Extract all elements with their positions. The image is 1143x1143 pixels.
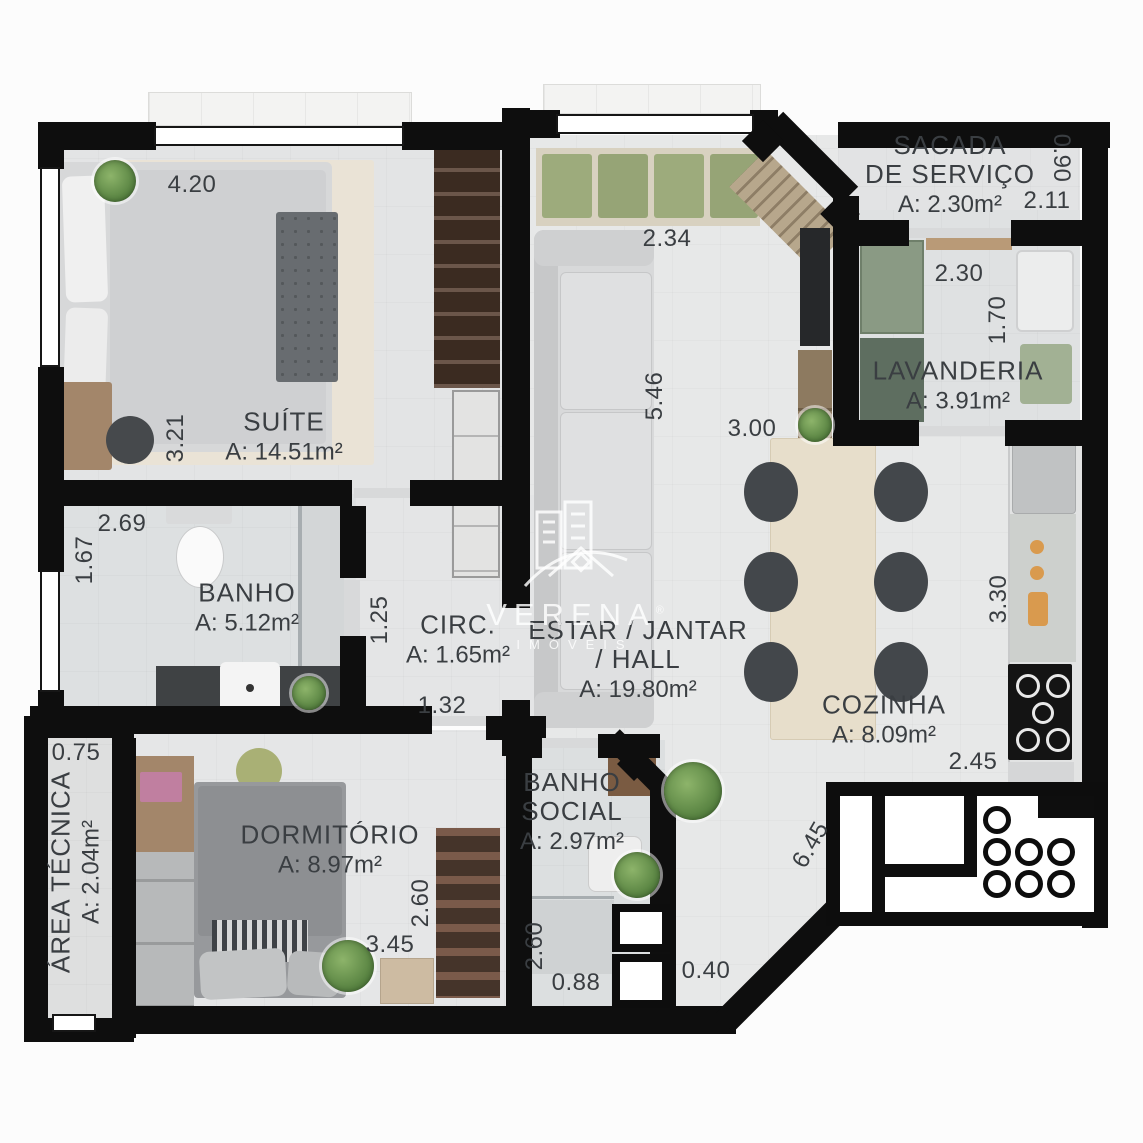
room-name: COZINHA bbox=[822, 691, 946, 720]
kitchen-item bbox=[1030, 540, 1044, 554]
room-name: SACADA bbox=[865, 131, 1035, 160]
dim-suite-width: 4.20 bbox=[168, 171, 217, 199]
dim-banho-social-width: 0.88 bbox=[552, 969, 601, 997]
schem-wall bbox=[872, 796, 885, 912]
room-area: A: 2.30m² bbox=[865, 192, 1035, 219]
room-area: A: 14.51m² bbox=[225, 440, 342, 467]
kitchen-item bbox=[1030, 566, 1044, 580]
dim-shaft-width: 0.40 bbox=[682, 957, 731, 985]
wall-segment bbox=[38, 122, 64, 169]
suite-stool bbox=[106, 416, 154, 464]
wall-segment bbox=[38, 480, 352, 506]
room-label-banho: BANHO A: 5.12m² bbox=[195, 579, 299, 638]
door-threshold bbox=[344, 580, 360, 636]
plant-icon bbox=[94, 160, 136, 202]
window bbox=[556, 114, 754, 134]
burner-icon bbox=[1046, 728, 1070, 752]
wall-segment bbox=[112, 738, 136, 1038]
schem-wall bbox=[964, 796, 977, 876]
brand-logo-icon bbox=[515, 498, 635, 590]
dim-cozinha-depth: 3.30 bbox=[985, 575, 1013, 624]
room-name: ÁREA TÉCNICA bbox=[47, 771, 76, 973]
shaft bbox=[612, 954, 670, 1008]
tv-panel bbox=[800, 228, 830, 346]
washer bbox=[860, 240, 924, 334]
room-area: A: 2.04m² bbox=[79, 771, 106, 973]
wall-segment bbox=[1005, 420, 1084, 446]
plant-icon bbox=[664, 762, 722, 820]
room-area: A: 19.80m² bbox=[528, 677, 748, 704]
wall-bottom-outer bbox=[118, 1006, 736, 1034]
plant-icon bbox=[614, 852, 660, 898]
building-core-schematic bbox=[826, 782, 1108, 926]
fridge bbox=[1012, 436, 1076, 514]
dim-dorm-width: 3.45 bbox=[366, 931, 415, 959]
dorm-wardrobe-right bbox=[436, 828, 500, 998]
room-label-area-tecnica: ÁREA TÉCNICA A: 2.04m² bbox=[47, 771, 106, 973]
kitchen-item bbox=[1028, 592, 1048, 626]
suite-desk bbox=[58, 382, 112, 470]
room-label-lavanderia: LAVANDERIA A: 3.91m² bbox=[873, 357, 1044, 416]
bench-cushion bbox=[654, 154, 704, 218]
exterior-sill-suite bbox=[148, 92, 412, 126]
window bbox=[154, 126, 404, 146]
schem-circle bbox=[983, 838, 1011, 866]
window bbox=[40, 570, 60, 692]
schem-circle bbox=[1047, 870, 1075, 898]
wall-segment bbox=[340, 506, 366, 578]
dim-circ-width: 1.32 bbox=[418, 692, 467, 720]
laundry-sink bbox=[1016, 250, 1074, 332]
room-label-cozinha: COZINHA A: 8.09m² bbox=[822, 691, 946, 750]
dim-area-tecnica-width: 0.75 bbox=[52, 739, 101, 767]
dim-living-width: 3.00 bbox=[728, 415, 777, 443]
door-threshold bbox=[919, 426, 1005, 436]
schem-circle bbox=[1047, 838, 1075, 866]
room-label-dormitorio: DORMITÓRIO A: 8.97m² bbox=[241, 821, 420, 880]
dim-lavanderia-depth: 1.70 bbox=[984, 296, 1012, 345]
dorm-desk-item bbox=[140, 772, 182, 802]
wall-segment bbox=[833, 420, 919, 446]
dining-chair bbox=[874, 552, 928, 612]
room-name: DE SERVIÇO bbox=[865, 160, 1035, 189]
vent bbox=[52, 1014, 96, 1032]
suite-tufted-bench bbox=[276, 212, 338, 382]
floor-plan: 4.20 3.21 0.90 2.11 2.30 1.70 2.34 5.46 … bbox=[0, 0, 1143, 1143]
window bbox=[40, 167, 60, 367]
schem-circle bbox=[983, 870, 1011, 898]
room-area: A: 3.91m² bbox=[873, 389, 1044, 416]
bench-cushion bbox=[542, 154, 592, 218]
burner-icon bbox=[1032, 702, 1054, 724]
room-label-banho-social: BANHO SOCIAL A: 2.97m² bbox=[520, 768, 624, 856]
bench-cushion bbox=[598, 154, 648, 218]
dorm-nightstand bbox=[380, 958, 434, 1004]
dim-cozinha-width: 2.45 bbox=[949, 748, 998, 776]
room-name: SUÍTE bbox=[225, 408, 342, 437]
dim-banho-width: 2.69 bbox=[98, 510, 147, 538]
cooktop bbox=[1008, 664, 1072, 760]
sofa-armrest bbox=[534, 230, 654, 266]
suite-wardrobe bbox=[434, 148, 500, 388]
wall-left-outer bbox=[24, 716, 48, 1042]
wall-segment bbox=[1011, 220, 1084, 246]
burner-icon bbox=[1016, 728, 1040, 752]
room-name: DORMITÓRIO bbox=[241, 821, 420, 850]
room-label-sacada: SACADA DE SERVIÇO A: 2.30m² bbox=[865, 131, 1035, 219]
door-threshold bbox=[909, 228, 1011, 238]
room-area: A: 8.09m² bbox=[822, 723, 946, 750]
schem-circle bbox=[1015, 838, 1043, 866]
wall-segment bbox=[38, 367, 64, 487]
burner-icon bbox=[1016, 674, 1040, 698]
room-label-suite: SUÍTE A: 14.51m² bbox=[225, 408, 342, 467]
dim-suite-depth: 3.21 bbox=[162, 414, 190, 463]
dim-banho-depth: 1.67 bbox=[71, 536, 99, 585]
room-area: A: 8.97m² bbox=[241, 853, 420, 880]
room-name: BANHO bbox=[195, 579, 299, 608]
dorm-desk bbox=[132, 756, 194, 852]
watermark: VERENA® IMÓVEIS bbox=[425, 498, 725, 652]
dining-chair bbox=[744, 642, 798, 702]
laundry-shelf bbox=[926, 236, 1012, 250]
brand-name: VERENA® bbox=[425, 597, 725, 633]
dim-circ-depth: 1.25 bbox=[366, 596, 394, 645]
exterior-sill-living bbox=[543, 84, 761, 114]
schem-circle bbox=[1015, 870, 1043, 898]
dorm-pillow bbox=[199, 948, 287, 1000]
dim-lavanderia-width: 2.30 bbox=[935, 260, 984, 288]
room-name: SOCIAL bbox=[520, 797, 624, 826]
dining-chair bbox=[744, 462, 798, 522]
drain-icon bbox=[246, 684, 254, 692]
kitchen-sink-counter bbox=[1010, 514, 1076, 662]
burner-icon bbox=[1046, 674, 1070, 698]
dim-banho-social-depth: 2.60 bbox=[521, 922, 549, 971]
room-area: A: 5.12m² bbox=[195, 611, 299, 638]
dim-dorm-depth: 2.60 bbox=[407, 879, 435, 928]
dim-living-depth: 5.46 bbox=[641, 372, 669, 421]
sofa-cushion bbox=[560, 272, 652, 410]
room-area: A: 2.97m² bbox=[520, 829, 624, 856]
plant-icon bbox=[292, 676, 326, 710]
schem-wall bbox=[1038, 796, 1094, 818]
dining-chair bbox=[874, 462, 928, 522]
shaft bbox=[612, 904, 670, 952]
dining-chair bbox=[744, 552, 798, 612]
brand-subtitle: IMÓVEIS bbox=[425, 637, 725, 652]
door-threshold bbox=[542, 738, 598, 748]
dim-living-top: 2.34 bbox=[643, 225, 692, 253]
schem-circle bbox=[983, 806, 1011, 834]
room-name: LAVANDERIA bbox=[873, 357, 1044, 386]
door-threshold bbox=[354, 488, 410, 498]
room-name: BANHO bbox=[520, 768, 624, 797]
plant-icon bbox=[798, 408, 832, 442]
dim-sacada-depth: 0.90 bbox=[1047, 134, 1075, 183]
